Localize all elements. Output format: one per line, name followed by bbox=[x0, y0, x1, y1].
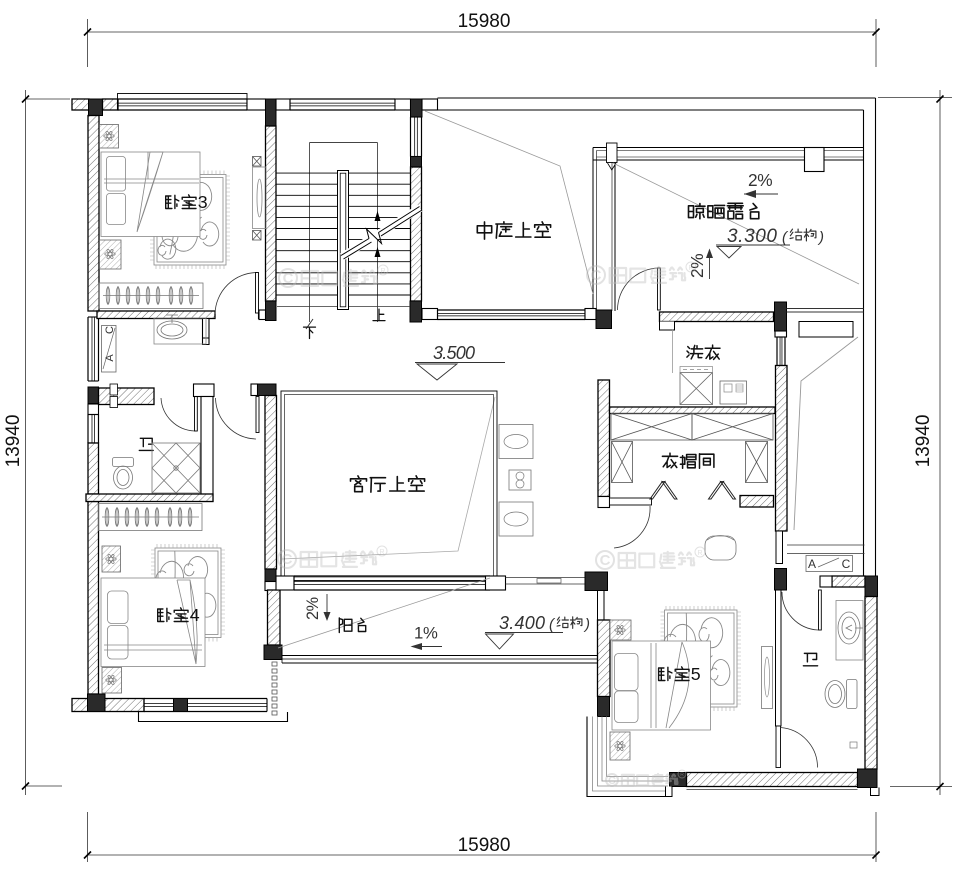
svg-text:R: R bbox=[380, 268, 385, 275]
svg-text:R: R bbox=[697, 550, 702, 557]
svg-text:A: A bbox=[808, 557, 816, 571]
svg-text:%: % bbox=[304, 597, 322, 611]
svg-text:): ) bbox=[817, 229, 824, 246]
svg-text:C: C bbox=[591, 267, 602, 284]
svg-text:C: C bbox=[283, 270, 294, 287]
svg-text:3: 3 bbox=[198, 192, 208, 212]
svg-text:R: R bbox=[379, 549, 384, 556]
svg-text:3.400: 3.400 bbox=[499, 613, 545, 633]
svg-text:%: % bbox=[757, 170, 772, 190]
svg-text:1: 1 bbox=[414, 623, 423, 642]
svg-text:%: % bbox=[423, 623, 438, 642]
svg-text:3.300: 3.300 bbox=[727, 226, 777, 247]
svg-text:A: A bbox=[104, 354, 116, 362]
svg-text:3.500: 3.500 bbox=[433, 343, 475, 363]
svg-text:4: 4 bbox=[190, 605, 200, 625]
svg-text:R: R bbox=[688, 265, 693, 272]
svg-text:13940: 13940 bbox=[3, 415, 24, 468]
svg-text:15980: 15980 bbox=[458, 11, 511, 32]
svg-text:13940: 13940 bbox=[913, 415, 934, 468]
svg-text:C: C bbox=[608, 775, 616, 787]
svg-text:C: C bbox=[282, 551, 293, 568]
svg-text:2: 2 bbox=[304, 611, 322, 620]
svg-text:2: 2 bbox=[748, 170, 758, 190]
svg-text:C: C bbox=[842, 557, 851, 571]
svg-text:C: C bbox=[104, 326, 116, 334]
svg-text:5: 5 bbox=[691, 664, 701, 684]
svg-text:): ) bbox=[583, 616, 590, 633]
svg-text:15980: 15980 bbox=[458, 835, 511, 856]
svg-text:R: R bbox=[680, 772, 684, 778]
svg-text:C: C bbox=[600, 552, 611, 569]
